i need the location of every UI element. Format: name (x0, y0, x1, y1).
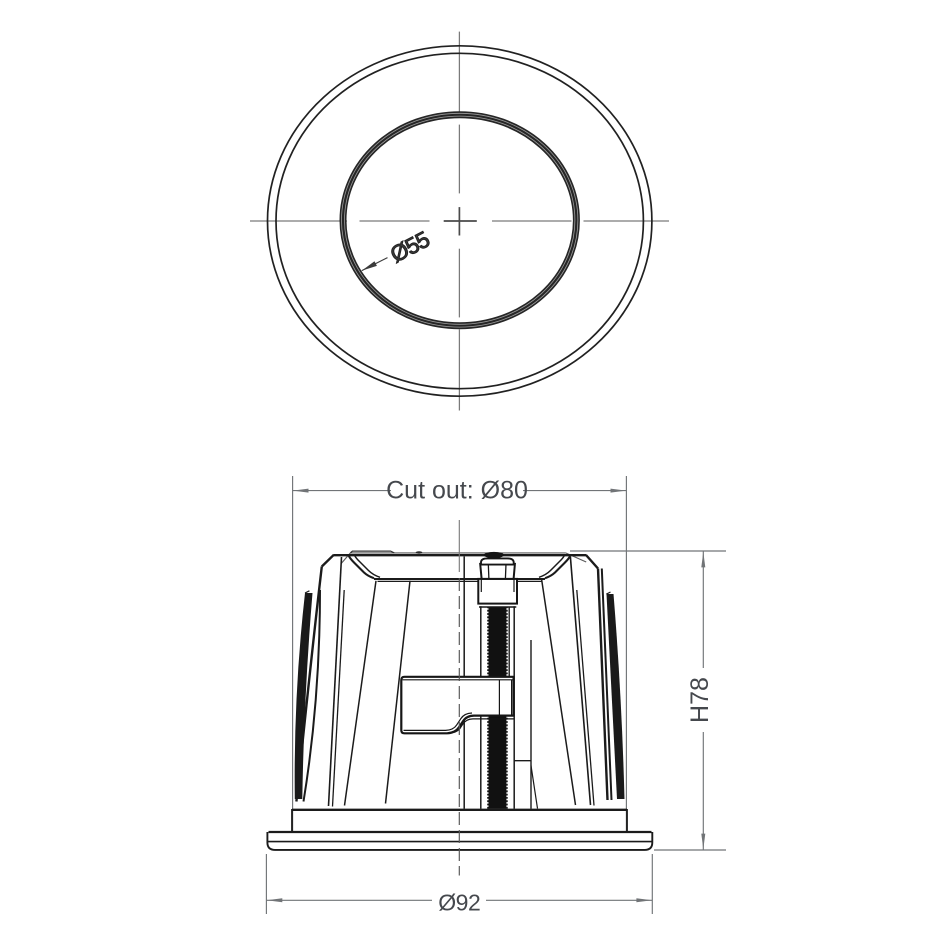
svg-text:H78: H78 (686, 677, 714, 723)
svg-text:Cut out: Ø80: Cut out: Ø80 (386, 477, 528, 505)
svg-text:Ø92: Ø92 (438, 890, 480, 916)
